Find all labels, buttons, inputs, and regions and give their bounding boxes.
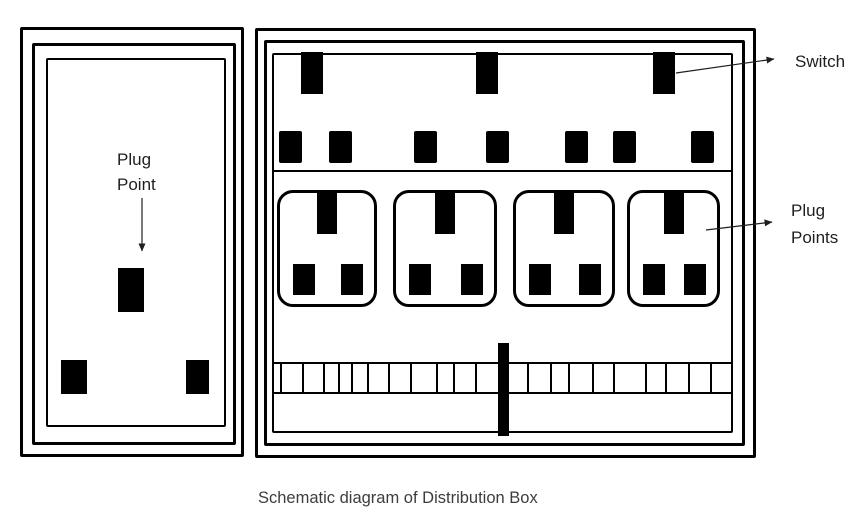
terminal-divider: [475, 364, 477, 392]
plug-point-socket: [277, 190, 377, 307]
socket-pin-top: [435, 190, 455, 234]
plug-pin-top: [118, 268, 144, 312]
terminal-divider: [351, 364, 353, 392]
terminal-divider: [280, 364, 282, 392]
switch: [301, 52, 323, 94]
socket-pin-top: [554, 190, 574, 234]
fuse-block: [565, 131, 588, 163]
terminal-divider: [665, 364, 667, 392]
diagram-caption: Schematic diagram of Distribution Box: [258, 489, 538, 508]
terminal-divider: [613, 364, 615, 392]
terminal-divider: [436, 364, 438, 392]
terminal-divider: [367, 364, 369, 392]
terminal-divider: [323, 364, 325, 392]
socket-pin-right: [579, 264, 601, 295]
socket-pin-left: [643, 264, 665, 295]
fuse-block: [691, 131, 714, 163]
plug-points-label-line2: Points: [791, 224, 838, 251]
socket-pin-right: [684, 264, 706, 295]
plug-point-socket: [393, 190, 497, 307]
fuse-block: [329, 131, 352, 163]
terminal-divider: [410, 364, 412, 392]
socket-pin-left: [529, 264, 551, 295]
plug-pin-left: [61, 360, 87, 394]
plug-points-label: Plug Points: [791, 197, 838, 251]
switch: [653, 52, 675, 94]
terminal-divider: [453, 364, 455, 392]
fuse-block: [613, 131, 636, 163]
switch: [476, 52, 498, 94]
center-connector-bar: [498, 343, 509, 436]
plug-point-label-line2: Point: [117, 172, 156, 197]
plug-point-socket: [513, 190, 615, 307]
plug-point-label: Plug Point: [117, 147, 156, 197]
socket-pin-top: [664, 190, 684, 234]
socket-pin-left: [409, 264, 431, 295]
terminal-divider: [550, 364, 552, 392]
terminal-divider: [645, 364, 647, 392]
fuse-block: [279, 131, 302, 163]
socket-pin-right: [341, 264, 363, 295]
socket-pin-left: [293, 264, 315, 295]
plug-pin-right: [186, 360, 209, 394]
fuse-block: [414, 131, 437, 163]
socket-pin-top: [317, 190, 337, 234]
terminal-divider: [388, 364, 390, 392]
terminal-divider: [527, 364, 529, 392]
terminal-divider: [568, 364, 570, 392]
plug-point-label-line1: Plug: [117, 147, 156, 172]
fuse-block: [486, 131, 509, 163]
socket-pin-right: [461, 264, 483, 295]
switch-label: Switch: [795, 49, 845, 75]
terminal-divider: [338, 364, 340, 392]
plug-point-socket: [627, 190, 720, 307]
fuse-row-divider-line: [272, 170, 733, 172]
plug-points-label-line1: Plug: [791, 197, 838, 224]
terminal-divider: [688, 364, 690, 392]
terminal-divider: [592, 364, 594, 392]
distribution-box-diagram: Plug Point: [0, 0, 861, 523]
terminal-divider: [302, 364, 304, 392]
terminal-divider: [710, 364, 712, 392]
